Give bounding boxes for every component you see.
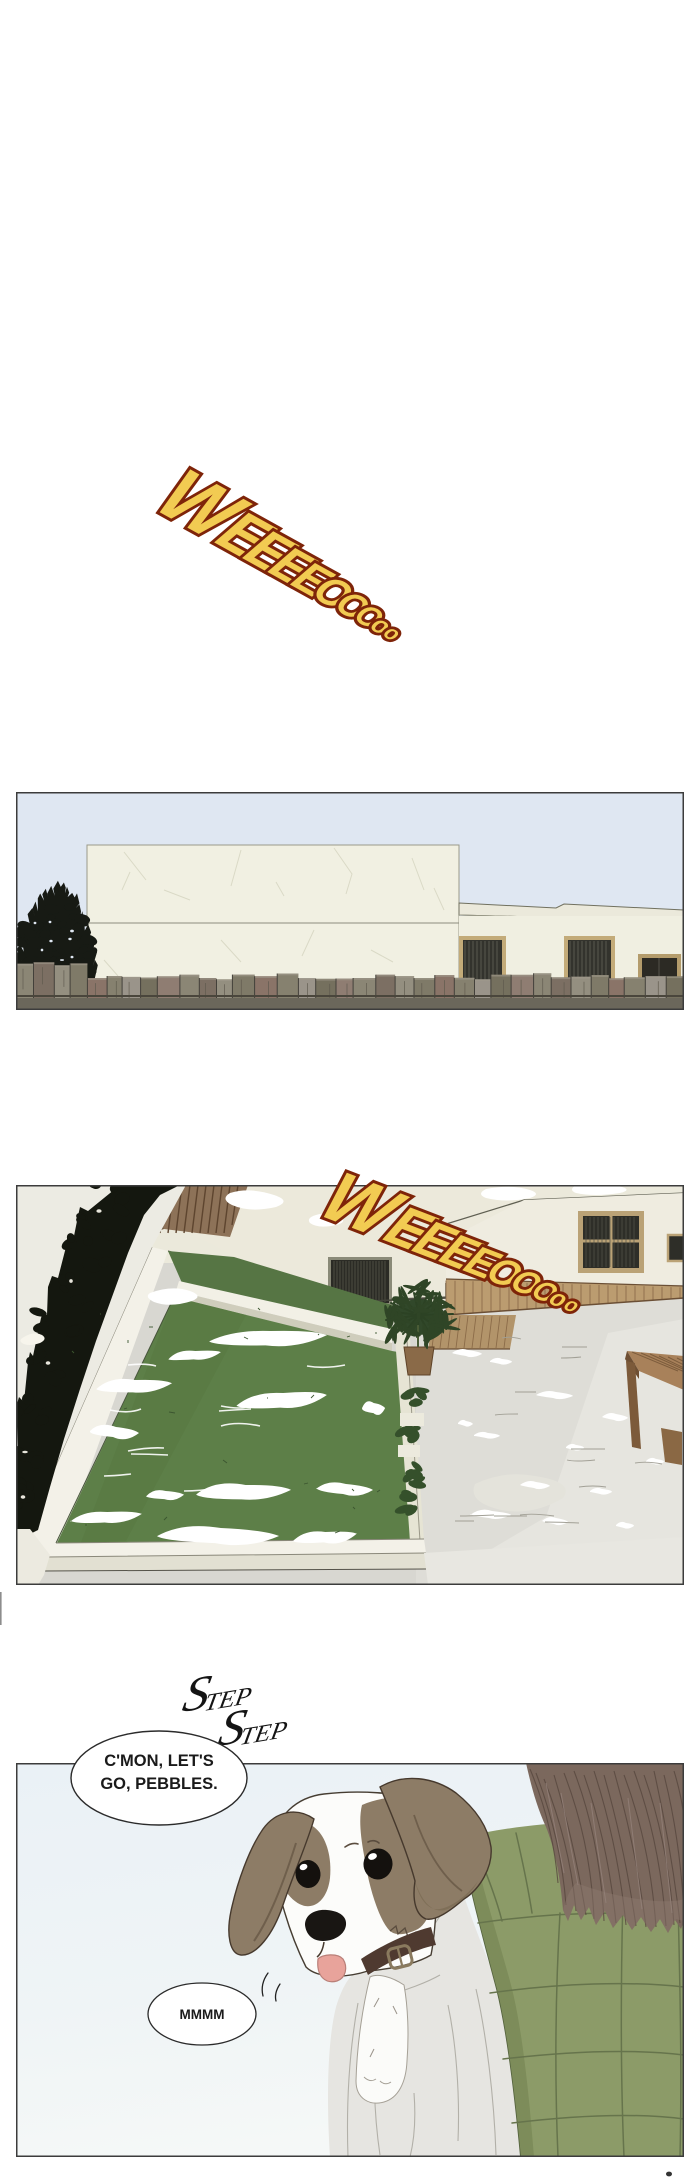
- svg-text:MMMM: MMMM: [180, 2007, 225, 2022]
- svg-text:GO, PEBBLES.: GO, PEBBLES.: [100, 1775, 217, 1793]
- svg-text:C'MON, LET'S: C'MON, LET'S: [104, 1752, 214, 1770]
- svg-text:o: o: [560, 1294, 583, 1317]
